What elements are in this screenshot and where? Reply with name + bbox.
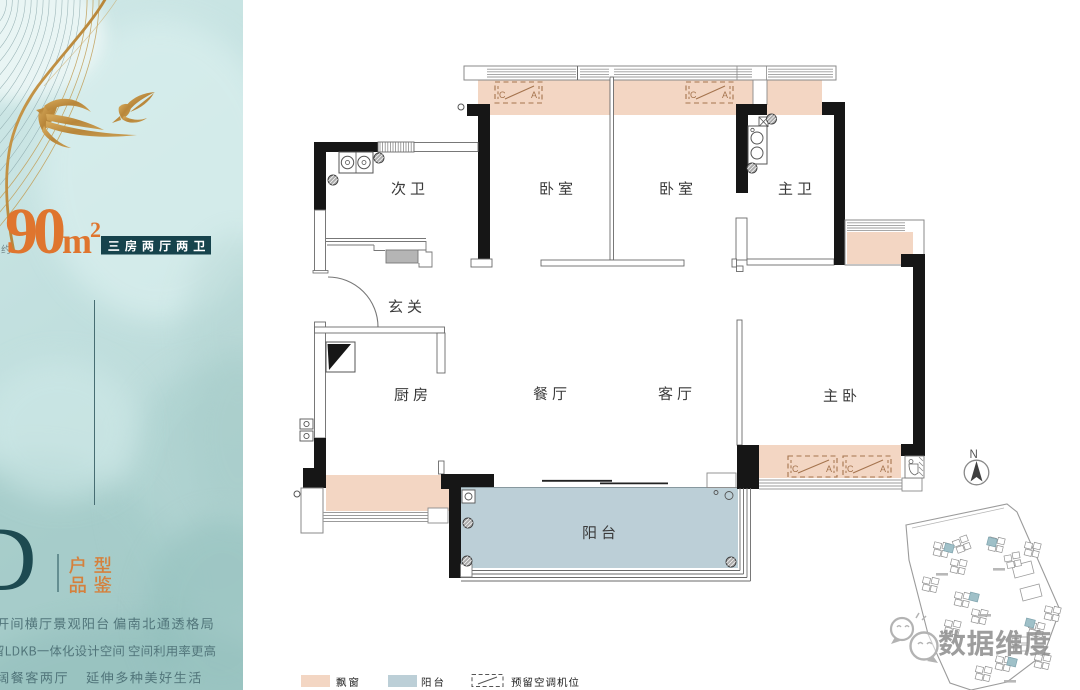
- svg-text:C: C: [792, 464, 799, 474]
- svg-text:A: A: [826, 464, 832, 474]
- svg-text:m: m: [62, 221, 92, 261]
- svg-text:90: 90: [5, 195, 64, 268]
- svg-text:C: C: [690, 90, 697, 100]
- svg-text:A: A: [531, 90, 537, 100]
- svg-text:A: A: [880, 464, 886, 474]
- svg-text:C: C: [847, 464, 854, 474]
- svg-text:A: A: [722, 90, 728, 100]
- svg-text:C: C: [499, 90, 506, 100]
- svg-text:2: 2: [90, 217, 101, 242]
- svg-text:D: D: [0, 508, 36, 610]
- svg-text:N: N: [970, 449, 978, 461]
